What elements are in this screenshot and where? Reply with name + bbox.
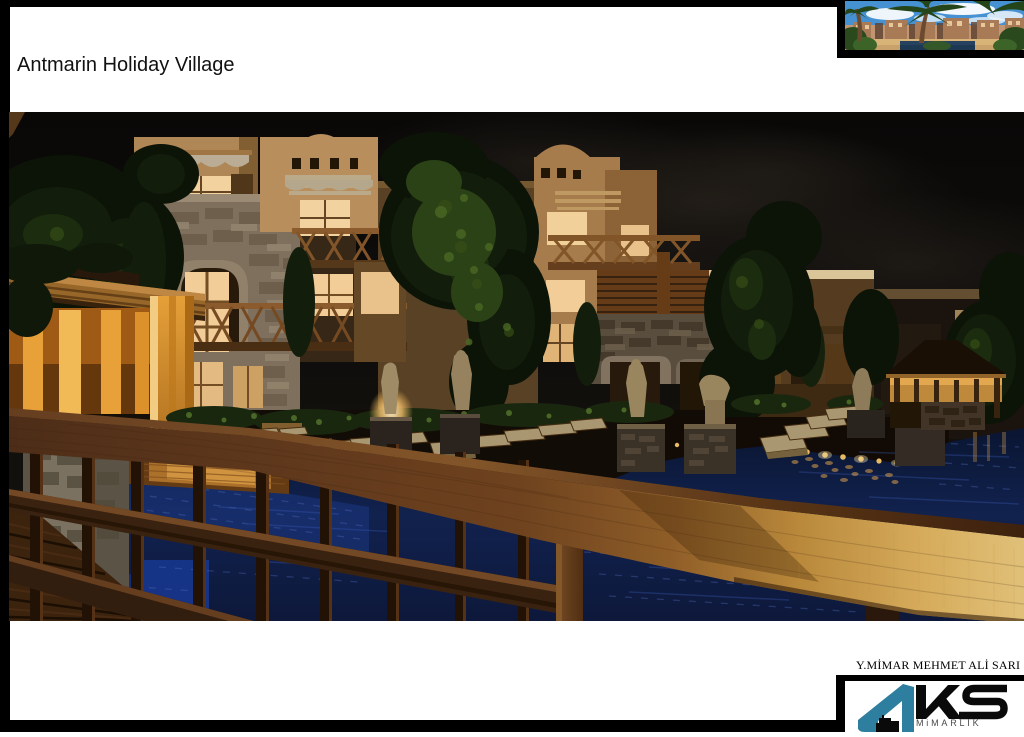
svg-text:MiMARLIK: MiMARLIK bbox=[916, 718, 981, 728]
